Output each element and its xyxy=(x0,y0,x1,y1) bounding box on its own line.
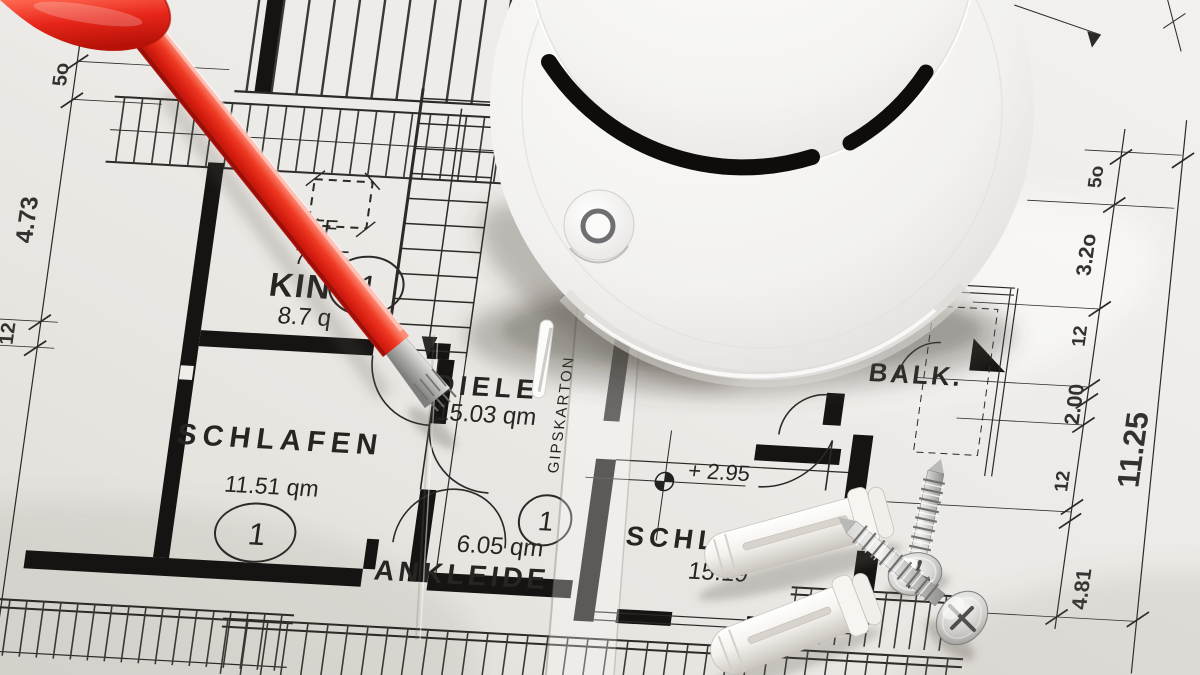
dim-right-c: 12 xyxy=(1068,325,1092,347)
detector-test-button-ring xyxy=(583,211,613,241)
room-area-schlafen-left: 11.51 qm xyxy=(223,471,321,502)
smoke-detector xyxy=(454,0,1034,421)
room-area-ankleide: 6.05 qm xyxy=(455,531,545,563)
dim-right-e: 12 xyxy=(1051,470,1075,492)
room-area-diele: 15.03 qm xyxy=(434,399,538,431)
dim-left-a: 5o xyxy=(49,62,74,87)
dim-left-c: 12 xyxy=(0,322,20,345)
wall-window-notch xyxy=(179,365,194,380)
dim-right-a: 5o xyxy=(1085,165,1109,188)
elevation-label: + 2.95 xyxy=(687,458,752,486)
photo-canvas: DFF 78/45 KIN 8.7 q 1 DIELE 15.03 qm GIP… xyxy=(0,0,1200,675)
photo-scene: DFF 78/45 KIN 8.7 q 1 DIELE 15.03 qm GIP… xyxy=(0,0,1200,675)
